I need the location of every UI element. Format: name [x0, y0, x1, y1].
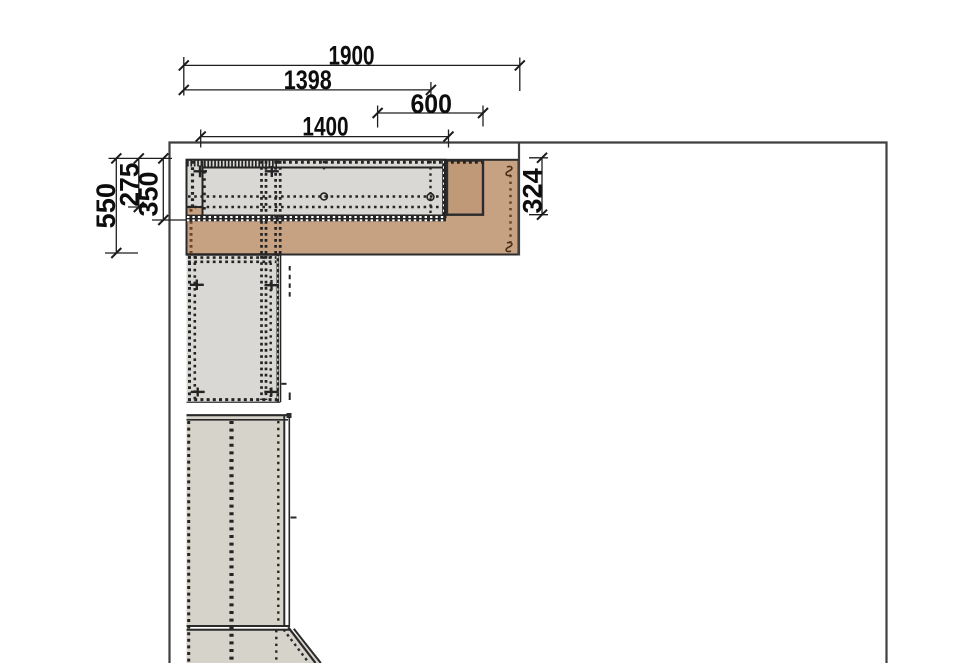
- svg-text:1400: 1400: [302, 111, 348, 141]
- svg-text:1398: 1398: [284, 65, 332, 95]
- svg-text:350: 350: [133, 172, 163, 217]
- svg-text:324: 324: [517, 168, 547, 214]
- svg-text:1900: 1900: [329, 41, 375, 71]
- svg-text:600: 600: [410, 89, 452, 119]
